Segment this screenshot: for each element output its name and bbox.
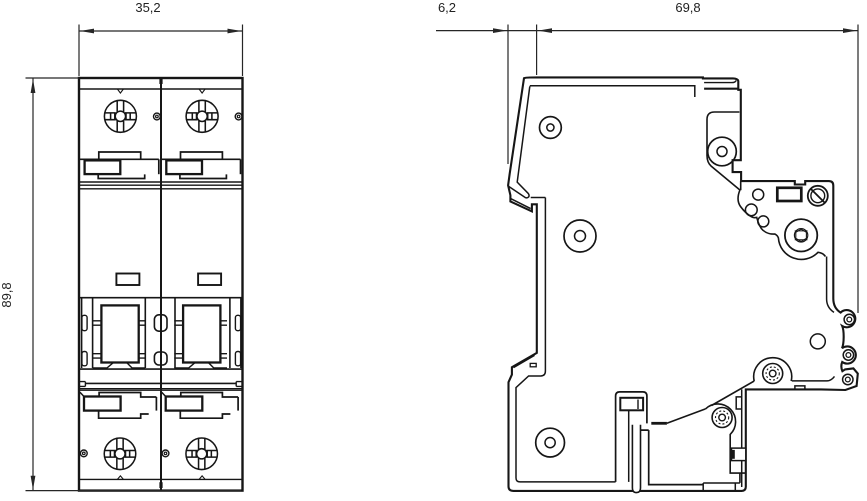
svg-text:89,8: 89,8 [0, 282, 14, 307]
svg-text:35,2: 35,2 [135, 0, 160, 15]
svg-text:69,8: 69,8 [675, 0, 700, 15]
svg-text:6,2: 6,2 [438, 0, 456, 15]
